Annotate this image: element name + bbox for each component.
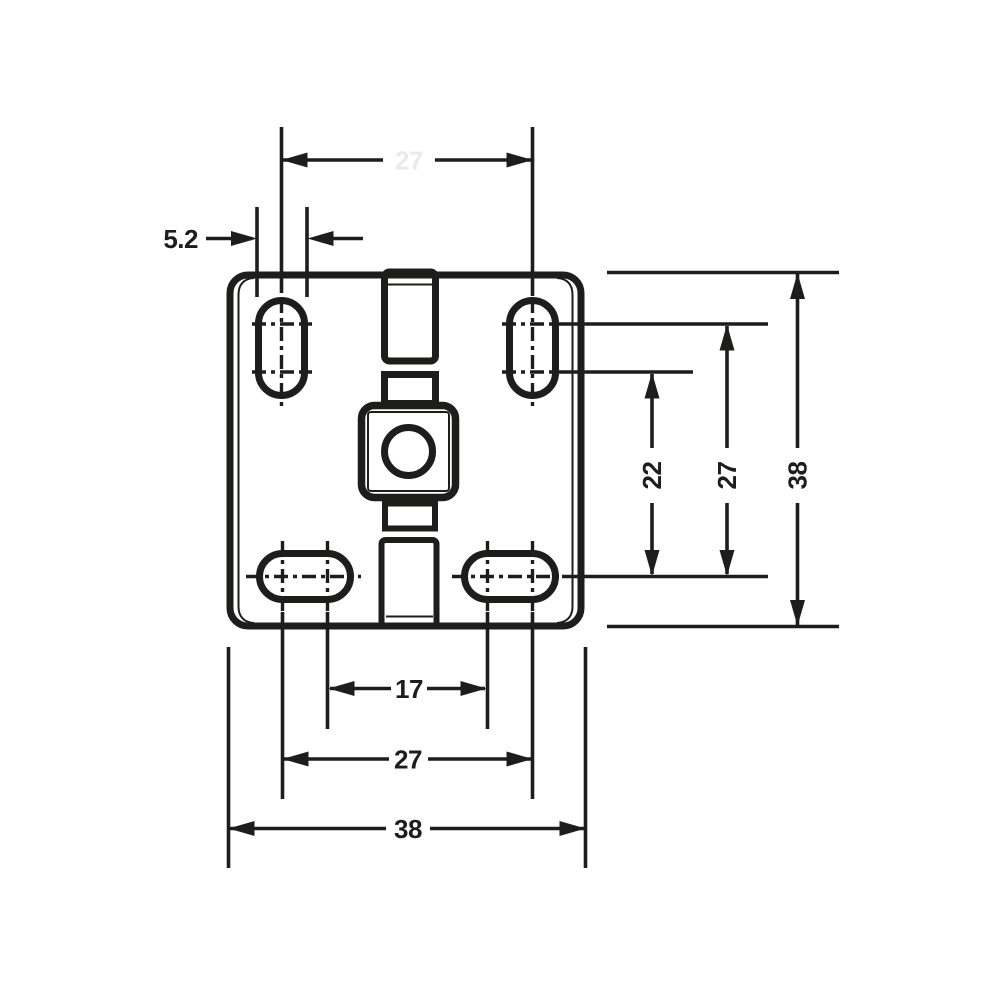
dim-label-right-38: 38	[783, 462, 813, 490]
centerlines	[246, 299, 562, 612]
dim-right-27: 27	[712, 325, 742, 577]
arrowhead-right	[231, 231, 257, 246]
center-hole	[385, 428, 433, 476]
center-boss-outline	[362, 406, 456, 498]
arrowhead-down	[645, 550, 660, 576]
arrowhead-up	[720, 325, 735, 351]
dim-label-slot-width: 5.2	[163, 224, 198, 254]
arrowhead-right	[560, 821, 586, 836]
center-channel-bottom-tab	[382, 540, 437, 626]
arrowhead-left	[282, 153, 308, 168]
dim-bottom-27: 27	[283, 745, 533, 775]
center-channel-lower-collar	[385, 504, 435, 529]
dim-bottom-17: 17	[329, 674, 487, 704]
dim-top-slot-pitch: 27	[282, 146, 533, 176]
center-boss-inner-line	[368, 412, 449, 491]
arrowhead-left	[229, 821, 255, 836]
plate-right-flange-line	[557, 278, 573, 623]
dim-label-bottom-17: 17	[395, 674, 423, 704]
arrowhead-right	[507, 153, 533, 168]
arrowhead-up	[790, 273, 805, 299]
arrowhead-right	[461, 681, 487, 696]
arrowhead-left	[283, 752, 309, 767]
dim-bottom-38: 38	[229, 814, 586, 844]
dim-label-bottom-38: 38	[394, 814, 422, 844]
arrowhead-up	[645, 373, 660, 399]
center-channel-upper-collar	[385, 375, 436, 404]
technical-drawing-canvas: 27 5.2 22 27 38 17	[0, 0, 1000, 1000]
dim-right-38: 38	[783, 273, 813, 626]
plate-left-flange-line	[239, 278, 255, 623]
dim-label-top-slot-pitch: 27	[395, 146, 423, 176]
dim-label-bottom-27: 27	[394, 745, 422, 775]
dim-label-right-22: 22	[637, 462, 667, 490]
dim-label-right-27: 27	[712, 462, 742, 490]
arrowhead-right	[507, 752, 533, 767]
arrowhead-down	[790, 600, 805, 626]
arrowhead-left	[308, 231, 334, 246]
dim-right-22: 22	[637, 373, 667, 577]
drawing-page: 27 5.2 22 27 38 17	[0, 0, 1000, 1000]
dim-slot-width: 5.2	[163, 224, 363, 254]
arrowhead-down	[720, 550, 735, 576]
arrowhead-left	[329, 681, 355, 696]
